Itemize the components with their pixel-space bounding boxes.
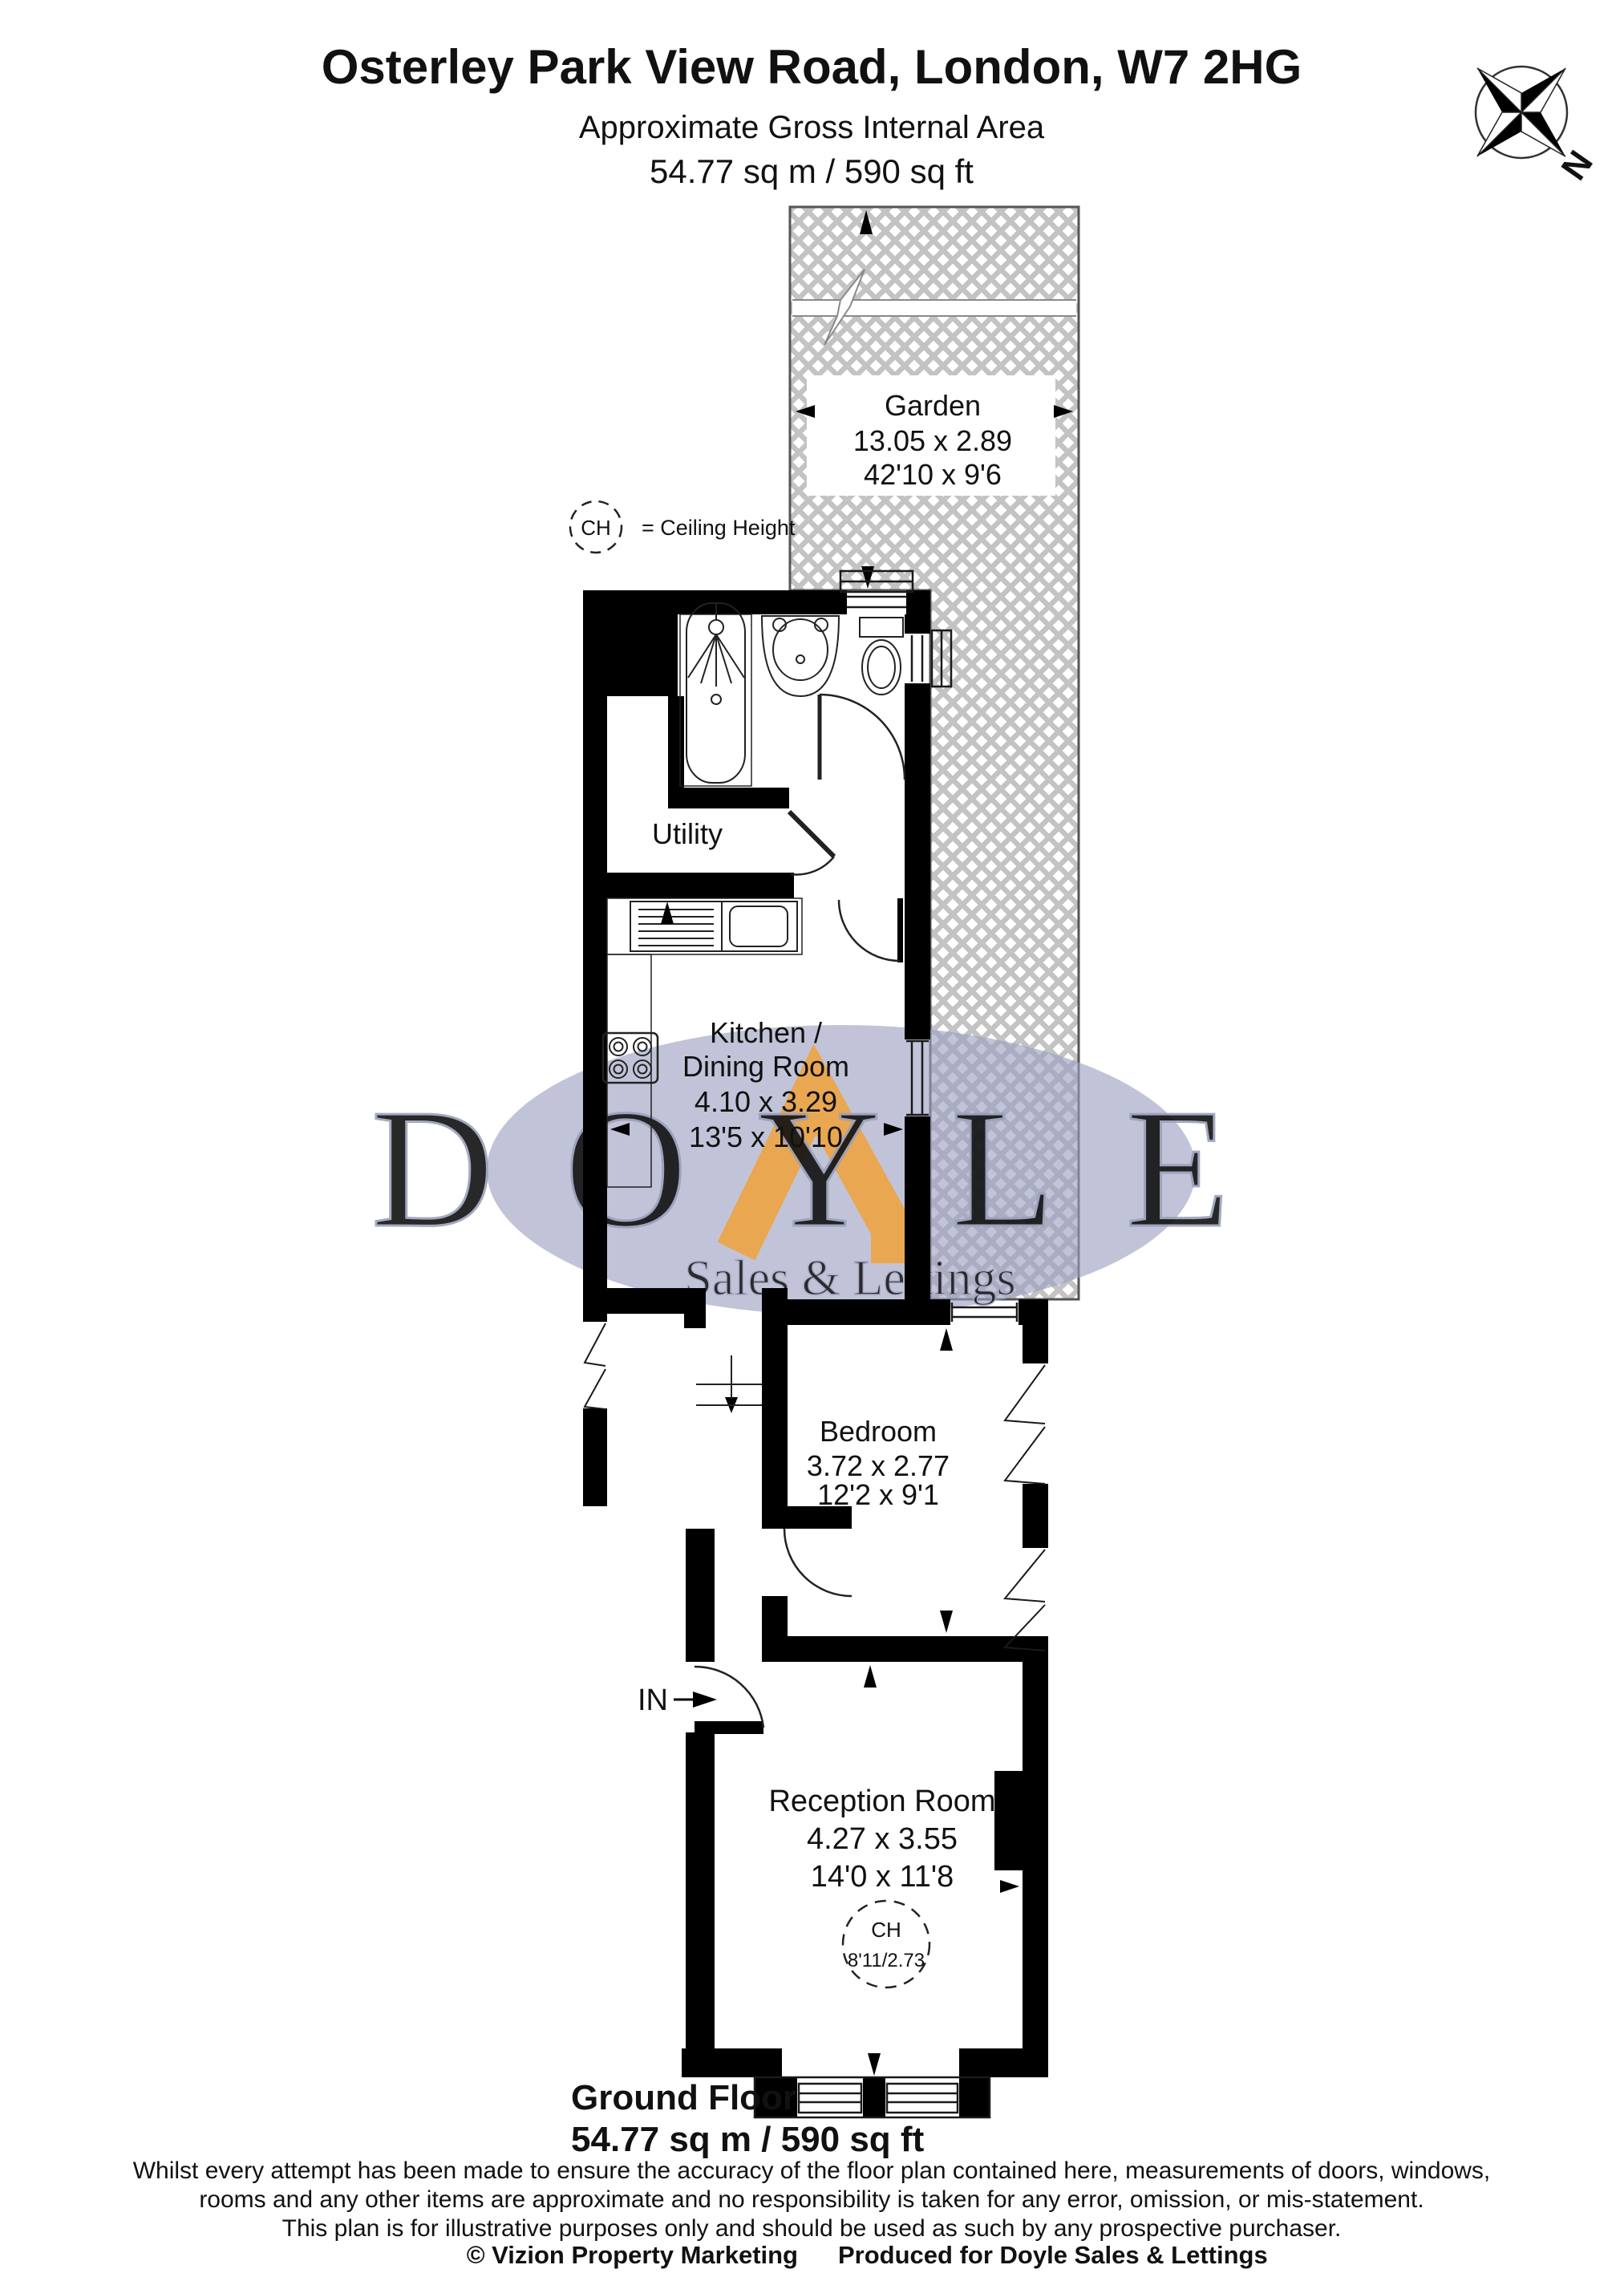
bedroom-name: Bedroom xyxy=(820,1415,937,1448)
footer-produced: Produced for Doyle Sales & Lettings xyxy=(838,2241,1268,2269)
disclaimer-line1: Whilst every attempt has been made to en… xyxy=(133,2158,1491,2184)
garden-name: Garden xyxy=(885,389,981,422)
reception-ch-value: 8'11/2.73 xyxy=(848,1950,925,1971)
kitchen-dims-m: 4.10 x 3.29 xyxy=(695,1085,837,1118)
reception-name: Reception Room xyxy=(768,1785,995,1818)
bathroom-door xyxy=(820,695,905,780)
reception-ch-circle xyxy=(843,1901,929,1987)
bedroom-door xyxy=(784,1529,852,1596)
legend-ch-symbol: CH xyxy=(581,516,611,540)
utility-label: Utility xyxy=(652,817,723,850)
disclaimer-line3: This plan is for illustrative purposes o… xyxy=(282,2215,1342,2242)
floorplan-page: Osterley Park View Road, London, W7 2HG … xyxy=(0,0,1624,2273)
sink-icon xyxy=(762,616,839,696)
compass-icon: N xyxy=(1476,67,1601,187)
entrance-label: IN xyxy=(638,1683,717,1717)
floor-plan-svg: Osterley Park View Road, London, W7 2HG … xyxy=(0,0,1624,2273)
page-subtitle: Approximate Gross Internal Area xyxy=(579,110,1045,145)
bedroom-label: Bedroom 3.72 x 2.77 12'2 x 9'1 xyxy=(807,1415,950,1511)
ceiling-height-legend: CH = Ceiling Height xyxy=(570,501,796,553)
bathtub-icon xyxy=(680,603,751,786)
kitchen-name-1: Kitchen / xyxy=(710,1016,822,1049)
disclaimer: Whilst every attempt has been made to en… xyxy=(133,2158,1491,2269)
kitchen-door xyxy=(839,900,900,961)
bedroom-dims-ft: 12'2 x 9'1 xyxy=(817,1478,939,1511)
reception-label: Reception Room 4.27 x 3.55 14'0 x 11'8 C… xyxy=(768,1785,995,1987)
watermark-tagline: Sales & Lettings xyxy=(684,1251,1015,1306)
floor-area: 54.77 sq m / 590 sq ft xyxy=(571,2120,925,2159)
bedroom-window-upper xyxy=(1005,1365,1045,1484)
garden-dims-m: 13.05 x 2.89 xyxy=(853,424,1012,457)
garden-dims-ft: 42'10 x 9'6 xyxy=(864,458,1002,491)
kitchen-dims-ft: 13'5 x 10'10 xyxy=(689,1120,843,1153)
utility-door xyxy=(789,812,834,874)
toilet-icon xyxy=(860,618,903,695)
floor-name: Ground Floor xyxy=(571,2078,796,2117)
page-area: 54.77 sq m / 590 sq ft xyxy=(650,152,974,190)
header: Osterley Park View Road, London, W7 2HG … xyxy=(322,40,1302,190)
reception-dims-m: 4.27 x 3.55 xyxy=(807,1822,958,1856)
corridor-window xyxy=(585,1323,605,1409)
entrance-in-text: IN xyxy=(638,1683,668,1717)
reception-ch-symbol: CH xyxy=(871,1918,901,1942)
bedroom-dims-m: 3.72 x 2.77 xyxy=(807,1449,950,1482)
page-title: Osterley Park View Road, London, W7 2HG xyxy=(322,40,1302,94)
legend-ch-meaning: = Ceiling Height xyxy=(642,516,796,540)
bedroom-window-lower xyxy=(1005,1550,1045,1651)
kitchen-name-2: Dining Room xyxy=(682,1050,849,1083)
footer-credit: © Vizion Property Marketing xyxy=(467,2241,798,2269)
disclaimer-line2: rooms and any other items are approximat… xyxy=(199,2186,1424,2213)
kitchen-sink-icon xyxy=(607,898,802,954)
entrance-arrow-icon xyxy=(693,1692,717,1708)
reception-dims-ft: 14'0 x 11'8 xyxy=(811,1860,954,1894)
